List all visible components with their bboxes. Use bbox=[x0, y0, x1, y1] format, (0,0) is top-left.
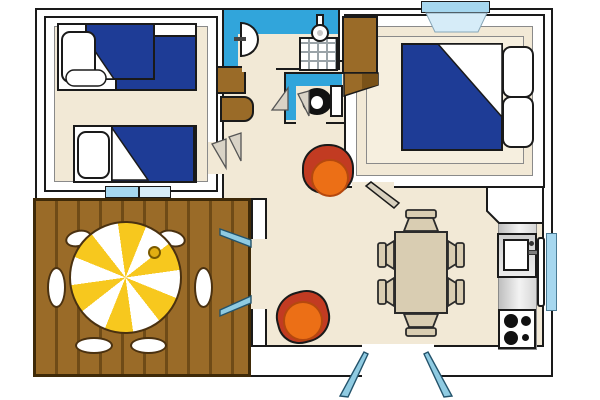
terrace-door-leaves bbox=[220, 229, 251, 316]
armchair-2-seat bbox=[283, 301, 323, 341]
front-door-leaf-right bbox=[424, 352, 452, 397]
twin-bedroom-door-swing-2 bbox=[229, 133, 241, 161]
wardrobe-extension bbox=[344, 73, 378, 96]
terrace-chair-6 bbox=[130, 337, 167, 354]
wc-door-swing bbox=[272, 88, 288, 110]
double-bedroom-window-light bbox=[426, 13, 487, 32]
dining-chair-left-1 bbox=[378, 241, 394, 269]
wc-inner-door-swing bbox=[298, 91, 309, 116]
terrace-chair-3 bbox=[47, 267, 66, 308]
dining-chair-right-1 bbox=[448, 241, 464, 269]
parasol bbox=[69, 221, 182, 334]
double-bedroom-door-leaf bbox=[366, 182, 399, 208]
floor-plan bbox=[0, 0, 600, 400]
dining-chair-top bbox=[404, 210, 438, 231]
kitchen-counter bbox=[487, 187, 543, 223]
front-door-leaf-left bbox=[340, 352, 368, 397]
terrace-chair-5 bbox=[75, 337, 113, 354]
door-swings bbox=[212, 88, 309, 168]
terrace-door-leaf-lower bbox=[220, 296, 251, 316]
dining-chair-right-2 bbox=[448, 278, 464, 306]
front-door-leaves bbox=[340, 352, 452, 397]
dining-chair-left-2 bbox=[378, 278, 394, 306]
twin-bedroom-door-swing-1 bbox=[212, 139, 226, 168]
terrace-drink bbox=[148, 246, 161, 259]
armchair-1-seat bbox=[311, 159, 349, 197]
dining-chair-bottom bbox=[404, 314, 438, 336]
terrace-chair-4 bbox=[194, 267, 213, 308]
terrace-door-leaf-upper bbox=[220, 229, 251, 247]
dining-table bbox=[394, 231, 448, 314]
